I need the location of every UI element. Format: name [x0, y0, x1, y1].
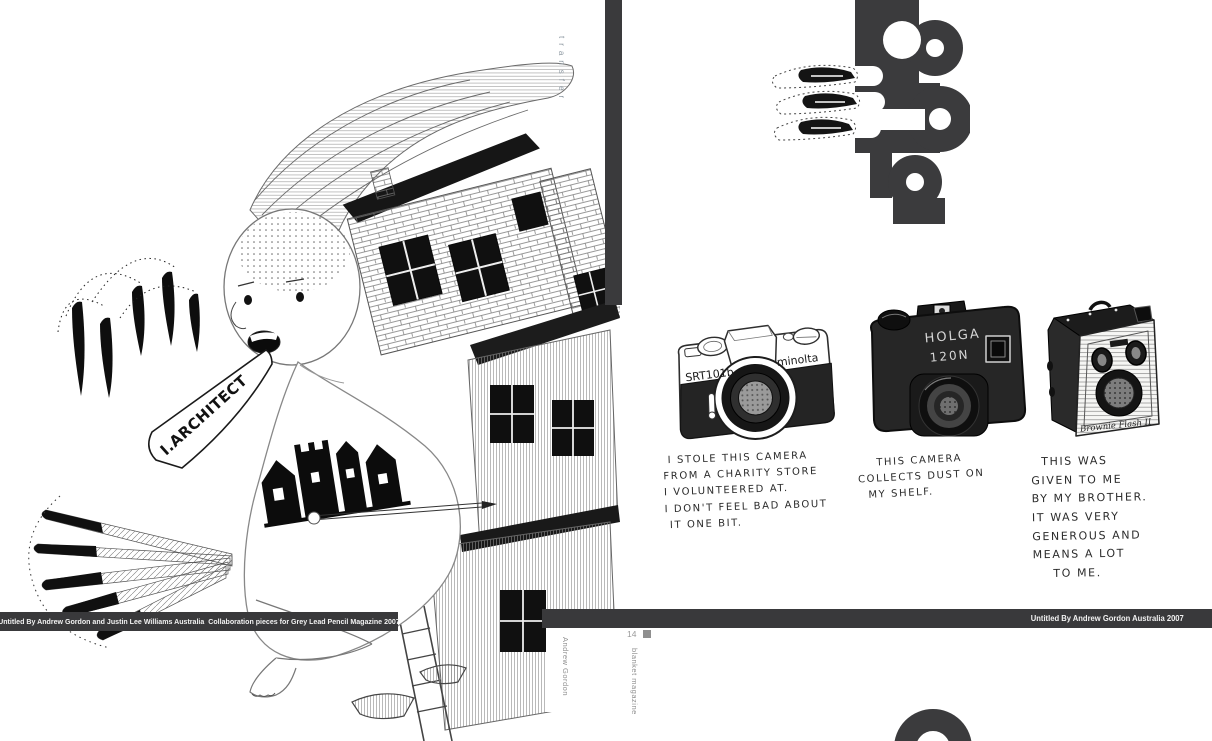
page-number-row: 14 — [627, 629, 651, 639]
magazine-spread: { "colors": { "bar": "#39393b", "letterf… — [0, 0, 1212, 741]
page-marker-square-icon — [643, 630, 651, 638]
page-number: 14 — [627, 629, 636, 639]
camera-illustration-brownie: Brownie Flash II — [1038, 296, 1168, 442]
finger-group — [772, 65, 885, 140]
artist-credit-label: Andrew Gordon — [559, 636, 572, 718]
speech-bubble: I.ARCHITECT — [149, 350, 272, 468]
claw-fingers-sketch — [765, 50, 890, 150]
rotated-letter-fragment — [870, 152, 945, 224]
camera-illustration-holga: HOLGA 120N — [858, 290, 1030, 442]
right-caption-text: Untitled By Andrew Gordon Australia 2007 — [1031, 609, 1184, 628]
left-caption-text: Untitled By Andrew Gordon and Justin Lee… — [0, 612, 400, 631]
magazine-title-label: blanket magazine — [630, 648, 639, 718]
camera-illustration-minolta: SRT101b minolta — [670, 318, 838, 450]
camera3-caption: THIS WAS GIVEN TO ME BY MY BROTHER. IT W… — [1031, 451, 1183, 584]
camera2-caption: THIS CAMERA COLLECTS DUST ON MY SHELF. — [857, 448, 1029, 505]
figure-head-sketch — [224, 209, 360, 365]
right-caption-bar: Untitled By Andrew Gordon Australia 2007 — [542, 609, 1212, 628]
left-caption-bar: Untitled By Andrew Gordon and Justin Lee… — [0, 612, 398, 631]
trees-sketch — [58, 258, 200, 398]
camera1-caption: I STOLE THIS CAMERA FROM A CHARITY STORE… — [663, 447, 856, 535]
gutter-white-patch — [546, 628, 910, 712]
transfer-label: transfer — [557, 36, 566, 131]
center-divider-bar — [605, 0, 622, 305]
